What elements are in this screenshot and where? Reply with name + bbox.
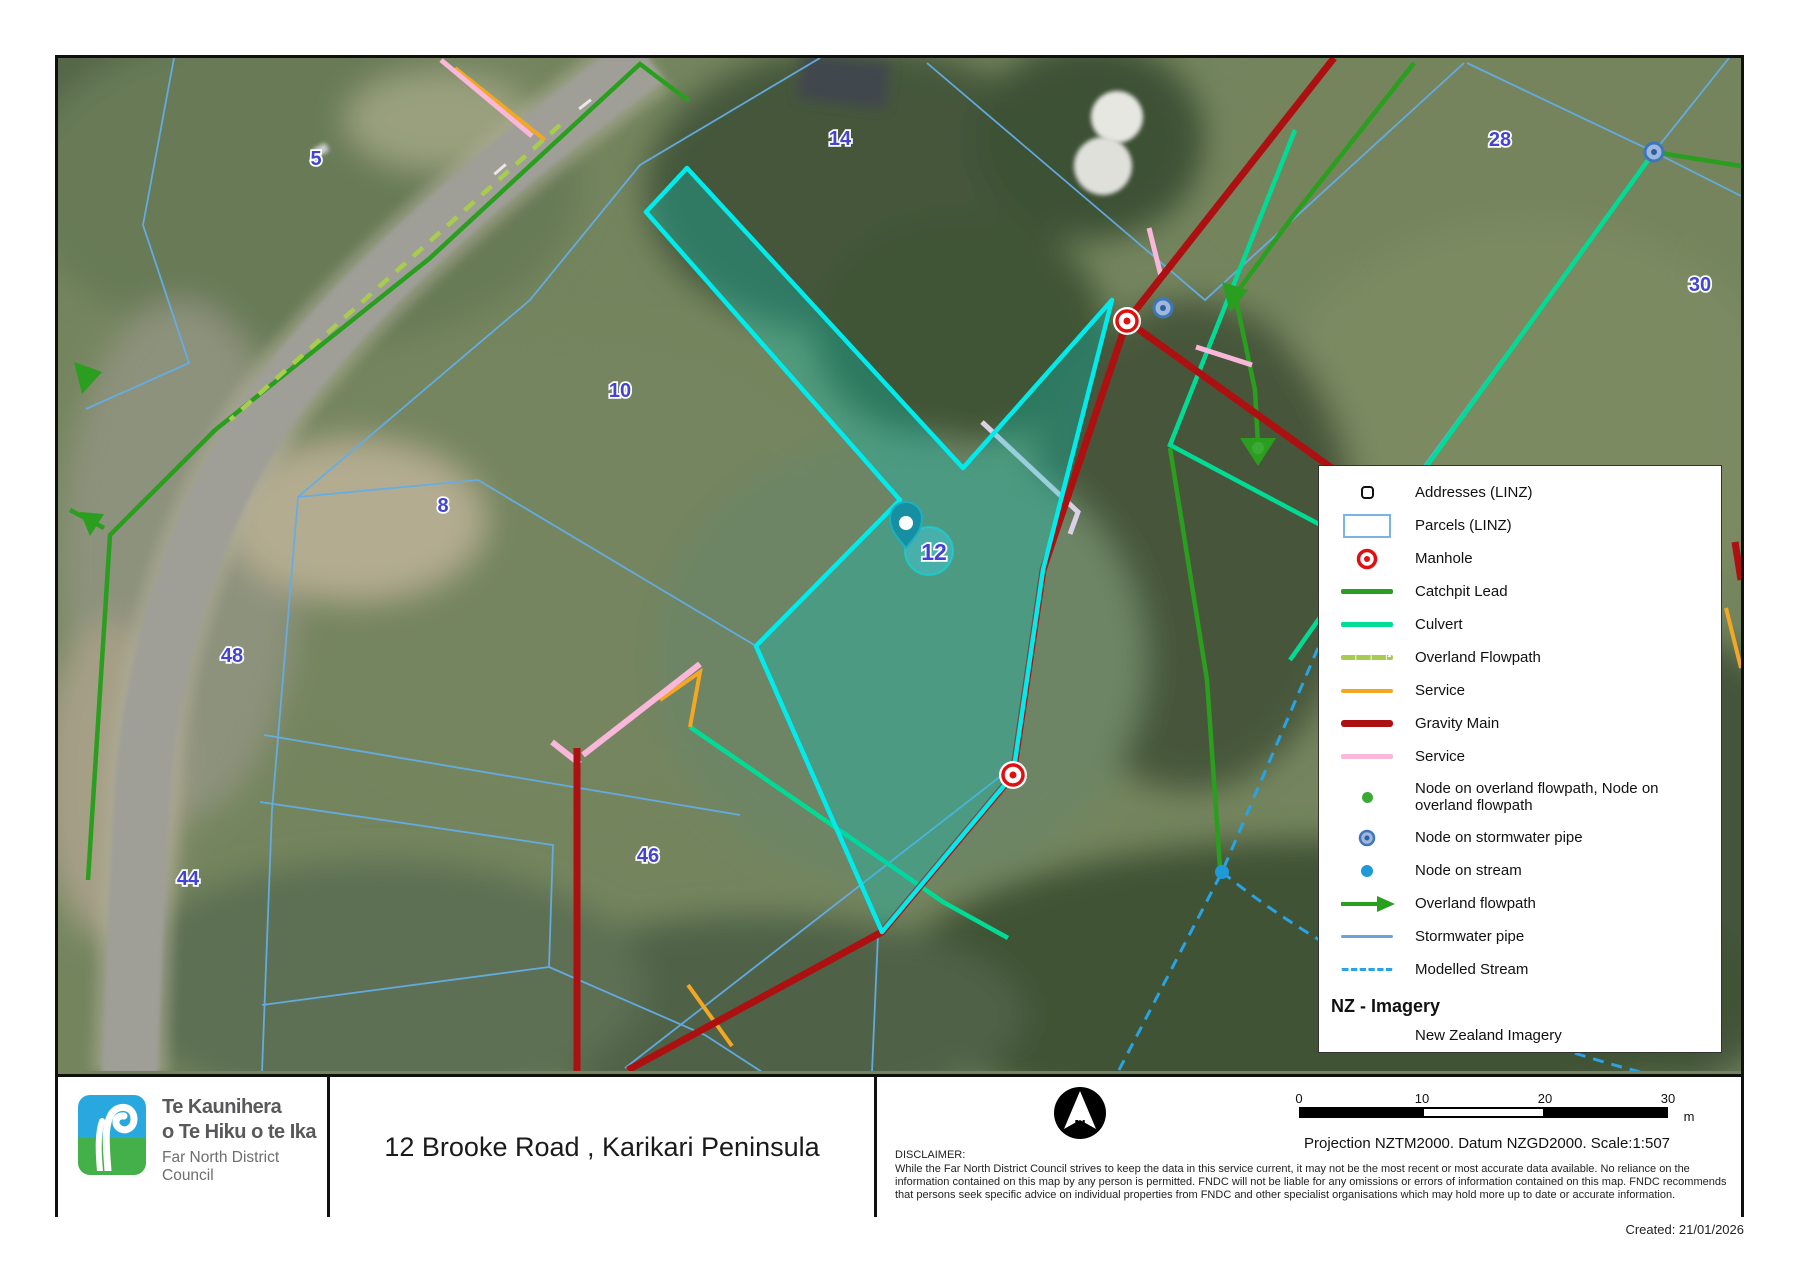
parcel-label-8: 8: [437, 495, 448, 517]
disclaimer-text: While the Far North District Council str…: [895, 1163, 1740, 1202]
map-title-cell: 12 Brooke Road , Karikari Peninsula: [330, 1077, 874, 1217]
legend-imagery-item: New Zealand Imagery: [1319, 1019, 1721, 1044]
node-on-stream: [1215, 865, 1229, 879]
legend-item-service-pink: Service: [1319, 740, 1721, 773]
parcel-label-5: 5: [310, 148, 321, 170]
address-icon: [1361, 486, 1374, 499]
parcel-label-14: 14: [829, 128, 852, 150]
legend-item-gravity-main: Gravity Main: [1319, 707, 1721, 740]
legend-item-addresses: Addresses (LINZ): [1319, 476, 1721, 509]
logo-text-line3: Far North District Council: [162, 1149, 327, 1185]
parcel-label-12: 12: [921, 539, 947, 565]
north-arrow-icon: N: [1052, 1085, 1108, 1141]
legend-item-node-stormwater: Node on stormwater pipe: [1319, 821, 1721, 854]
parcel-label-44: 44: [177, 868, 200, 890]
legend-item-node-overland-flowpath: Node on overland flowpath, Node on overl…: [1319, 773, 1721, 821]
legend-panel: Addresses (LINZ) Parcels (LINZ) Manhole …: [1318, 465, 1722, 1053]
disclaimer-block: DISCLAIMER: While the Far North District…: [895, 1149, 1740, 1202]
map-title: 12 Brooke Road , Karikari Peninsula: [384, 1132, 819, 1163]
legend-item-catchpit-lead: Catchpit Lead: [1319, 575, 1721, 608]
legend-item-node-stream: Node on stream: [1319, 854, 1721, 887]
stormwater-pipe-line-icon: [1341, 935, 1393, 938]
scale-bar: [1299, 1107, 1668, 1118]
legend-item-modelled-stream: Modelled Stream: [1319, 953, 1721, 986]
legend-item-culvert: Culvert: [1319, 608, 1721, 641]
culvert-line-icon: [1341, 622, 1393, 627]
legend-item-overland-flowpath-arrow: Overland flowpath: [1319, 887, 1721, 920]
legend-item-stormwater-pipe: Stormwater pipe: [1319, 920, 1721, 953]
parcel-label-28: 28: [1489, 129, 1511, 151]
manhole-icon: [1355, 547, 1379, 571]
legend-item-overland-flowpath-line: Overland Flowpath: [1319, 641, 1721, 674]
modelled-stream-dashed-icon: [1341, 968, 1393, 971]
parcel-label-46: 46: [637, 845, 659, 867]
parcel-swatch-icon: [1343, 514, 1391, 538]
legend-item-service-orange: Service: [1319, 674, 1721, 707]
legend-item-parcels: Parcels (LINZ): [1319, 509, 1721, 542]
gravity-main-line-icon: [1341, 720, 1393, 727]
koru-icon: [86, 1099, 138, 1171]
catchpit-lead-line-icon: [1341, 589, 1393, 594]
created-timestamp: Created: 21/01/2026: [1404, 1222, 1744, 1237]
footer-bar: Te Kaunihera o Te Hiku o te Ika Far Nort…: [58, 1074, 1741, 1217]
service-pink-line-icon: [1341, 754, 1393, 759]
disclaimer-heading: DISCLAIMER:: [895, 1149, 1740, 1161]
node-overland-flowpath-icon: [1362, 792, 1373, 803]
node-stream-icon: [1361, 865, 1373, 877]
parcel-label-30: 30: [1689, 274, 1711, 296]
legend-imagery-heading: NZ - Imagery: [1319, 986, 1721, 1019]
map-info-cell: N 0 10 20 30 m Projection NZTM2000. Datu…: [877, 1077, 1741, 1217]
overland-flowpath-arrow-icon: [1339, 895, 1395, 913]
parcel-label-10: 10: [609, 380, 631, 402]
overland-flowpath-dashed-icon: [1341, 655, 1393, 660]
legend-item-manhole: Manhole: [1319, 542, 1721, 575]
service-orange-line-icon: [1341, 689, 1393, 693]
logo-text-line1: Te Kaunihera: [162, 1095, 327, 1120]
node-stormwater-pipe-icon: [1357, 828, 1377, 848]
fndc-map-export: { "map": { "labels": [ {"text": "5"}, {"…: [0, 0, 1810, 1280]
logo-text-line2: o Te Hiku o te Ika: [162, 1120, 327, 1145]
parcel-label-48: 48: [221, 645, 243, 667]
council-logo-icon: [78, 1095, 146, 1175]
council-logo-cell: Te Kaunihera o Te Hiku o te Ika Far Nort…: [58, 1077, 327, 1217]
svg-text:N: N: [1074, 1118, 1086, 1135]
